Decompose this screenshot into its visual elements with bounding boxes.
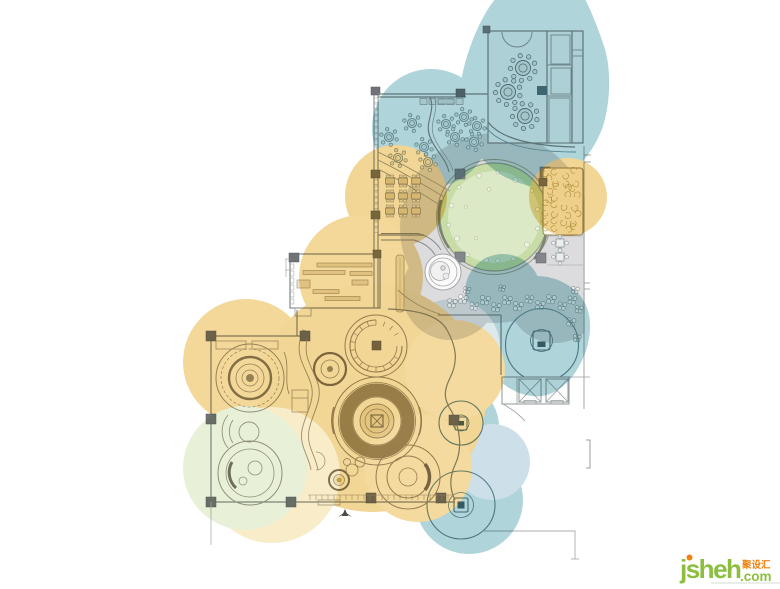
svg-text:.com: .com (740, 569, 772, 584)
svg-text:jsheh: jsheh (679, 554, 741, 584)
